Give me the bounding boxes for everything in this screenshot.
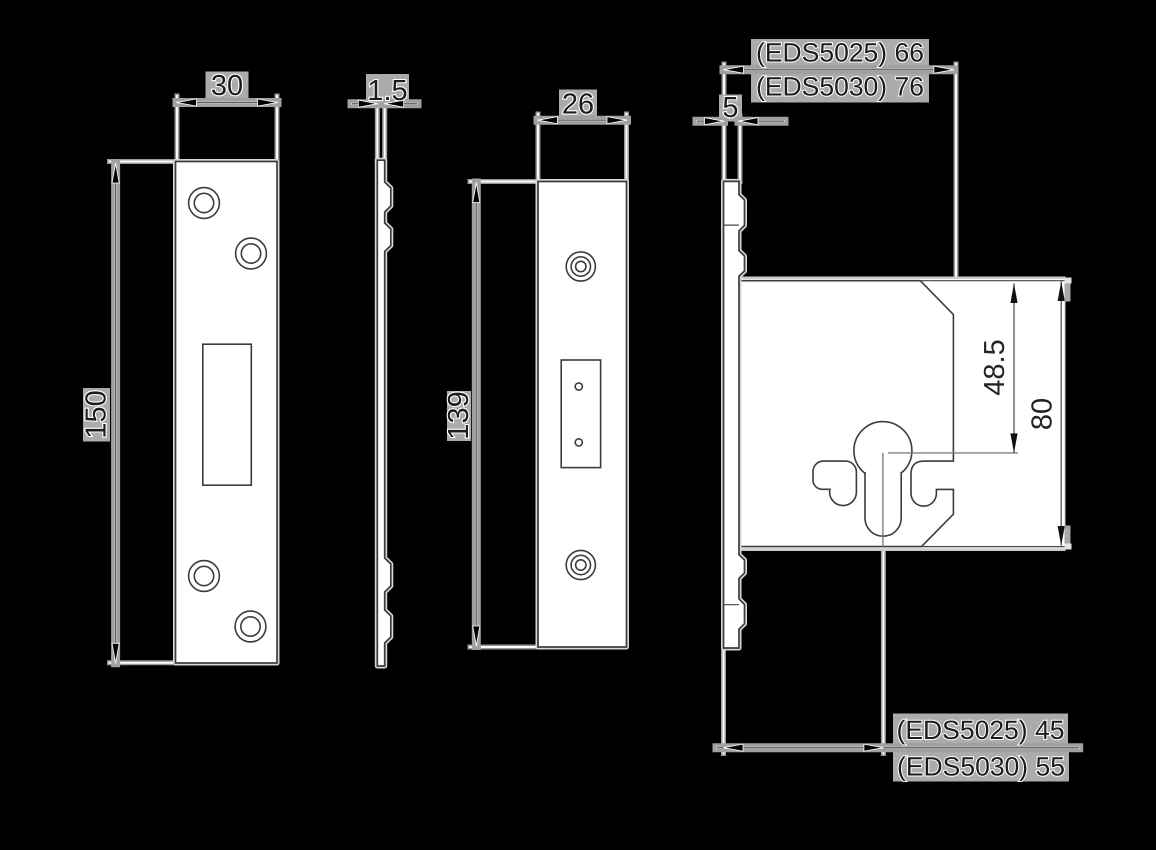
svg-text:1.5: 1.5 [367, 75, 407, 107]
svg-text:26: 26 [562, 89, 594, 121]
svg-text:5: 5 [722, 92, 738, 124]
svg-text:(EDS5025) 66: (EDS5025) 66 [756, 38, 924, 68]
svg-text:80: 80 [1027, 398, 1059, 430]
svg-text:30: 30 [211, 70, 243, 102]
svg-text:(EDS5025) 45: (EDS5025) 45 [897, 715, 1065, 745]
svg-text:139: 139 [443, 391, 475, 439]
svg-text:(EDS5030) 76: (EDS5030) 76 [756, 72, 924, 102]
svg-text:(EDS5030) 55: (EDS5030) 55 [897, 752, 1065, 782]
svg-text:150: 150 [81, 390, 113, 438]
svg-text:48.5: 48.5 [979, 339, 1011, 395]
